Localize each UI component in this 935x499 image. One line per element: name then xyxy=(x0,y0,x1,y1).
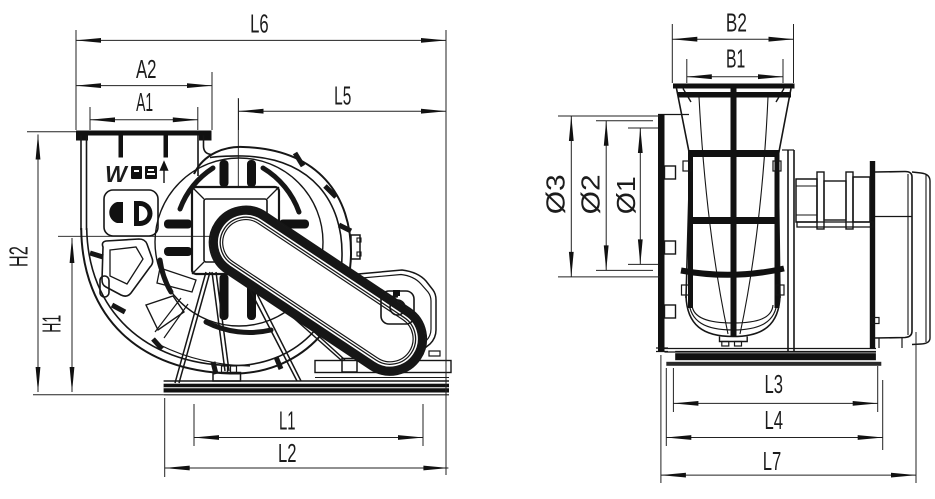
svg-text:L3: L3 xyxy=(764,369,783,399)
svg-text:Ø3: Ø3 xyxy=(541,174,571,214)
svg-text:H2: H2 xyxy=(3,246,33,267)
svg-text:B1: B1 xyxy=(726,43,745,73)
svg-text:L6: L6 xyxy=(250,8,269,38)
svg-text:L2: L2 xyxy=(278,438,297,468)
svg-text:Ø1: Ø1 xyxy=(611,176,641,214)
svg-text:L5: L5 xyxy=(334,80,351,110)
svg-text:W: W xyxy=(105,161,129,187)
svg-text:B2: B2 xyxy=(726,8,747,38)
svg-text:L4: L4 xyxy=(764,405,783,435)
svg-text:Ø2: Ø2 xyxy=(576,174,606,214)
svg-text:H1: H1 xyxy=(37,315,67,333)
svg-text:A2: A2 xyxy=(136,54,157,84)
svg-text:L1: L1 xyxy=(279,406,296,436)
svg-text:L7: L7 xyxy=(763,446,782,476)
svg-text:A1: A1 xyxy=(136,87,153,117)
